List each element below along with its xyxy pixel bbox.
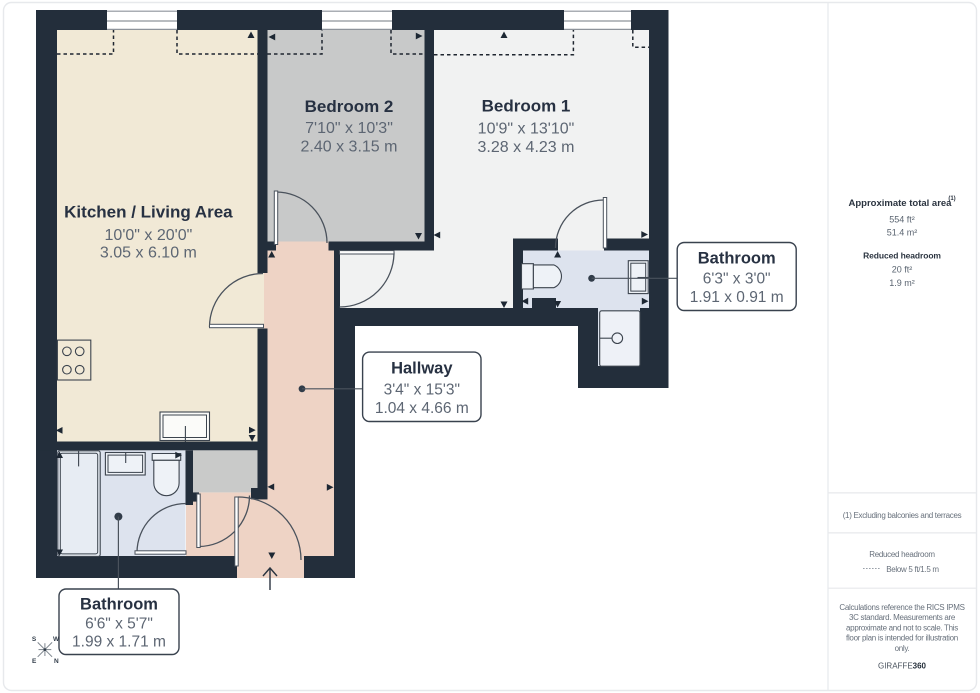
svg-text:10'0" x 20'0": 10'0" x 20'0" [105, 227, 193, 244]
svg-text:Hallway: Hallway [391, 360, 453, 378]
svg-text:1.91 x 0.91 m: 1.91 x 0.91 m [690, 289, 784, 306]
svg-text:S: S [32, 636, 37, 643]
svg-text:Kitchen / Living Area: Kitchen / Living Area [64, 203, 233, 222]
svg-text:(1): (1) [948, 196, 955, 202]
svg-text:1.04 x 4.66 m: 1.04 x 4.66 m [375, 400, 469, 417]
svg-text:3C standard. Measurements are: 3C standard. Measurements are [849, 613, 956, 622]
svg-text:2.40 x 3.15 m: 2.40 x 3.15 m [301, 139, 398, 156]
svg-text:Reduced headroom: Reduced headroom [869, 550, 935, 559]
svg-text:E: E [32, 658, 37, 665]
svg-text:3.05 x 6.10 m: 3.05 x 6.10 m [100, 245, 197, 262]
svg-text:20 ft²: 20 ft² [892, 264, 913, 274]
svg-text:N: N [54, 658, 59, 665]
svg-text:7'10" x 10'3": 7'10" x 10'3" [305, 120, 393, 137]
svg-text:3.28 x 4.23 m: 3.28 x 4.23 m [478, 139, 575, 156]
svg-text:3'4" x 15'3": 3'4" x 15'3" [384, 382, 460, 399]
svg-text:10'9" x 13'10": 10'9" x 13'10" [478, 121, 575, 138]
svg-text:Bathroom: Bathroom [80, 596, 158, 614]
svg-text:floor plan is intended for ill: floor plan is intended for illustration [846, 634, 958, 643]
svg-text:Calculations reference the RIC: Calculations reference the RICS IPMS [839, 603, 964, 612]
svg-text:GIRAFFE360: GIRAFFE360 [878, 662, 927, 671]
svg-text:51.4 m²: 51.4 m² [887, 228, 918, 238]
svg-text:6'6" x 5'7": 6'6" x 5'7" [85, 616, 153, 633]
svg-text:only.: only. [895, 644, 910, 653]
svg-text:W: W [53, 636, 60, 643]
svg-text:Bathroom: Bathroom [698, 250, 776, 268]
svg-text:Reduced headroom: Reduced headroom [863, 251, 941, 261]
svg-text:approximate and not to scale.: approximate and not to scale. This [846, 623, 958, 632]
svg-text:Bedroom 1: Bedroom 1 [482, 97, 571, 116]
svg-text:1.99 x 1.71 m: 1.99 x 1.71 m [72, 634, 166, 651]
svg-text:6'3" x 3'0": 6'3" x 3'0" [703, 271, 771, 288]
svg-text:Approximate total area: Approximate total area [849, 198, 953, 209]
svg-text:554 ft²: 554 ft² [889, 214, 915, 224]
svg-text:Below 5 ft/1.5 m: Below 5 ft/1.5 m [886, 565, 939, 574]
svg-text:1.9 m²: 1.9 m² [889, 278, 915, 288]
svg-text:Bedroom 2: Bedroom 2 [305, 97, 394, 116]
svg-text:(1) Excluding balconies and te: (1) Excluding balconies and terraces [843, 511, 962, 520]
